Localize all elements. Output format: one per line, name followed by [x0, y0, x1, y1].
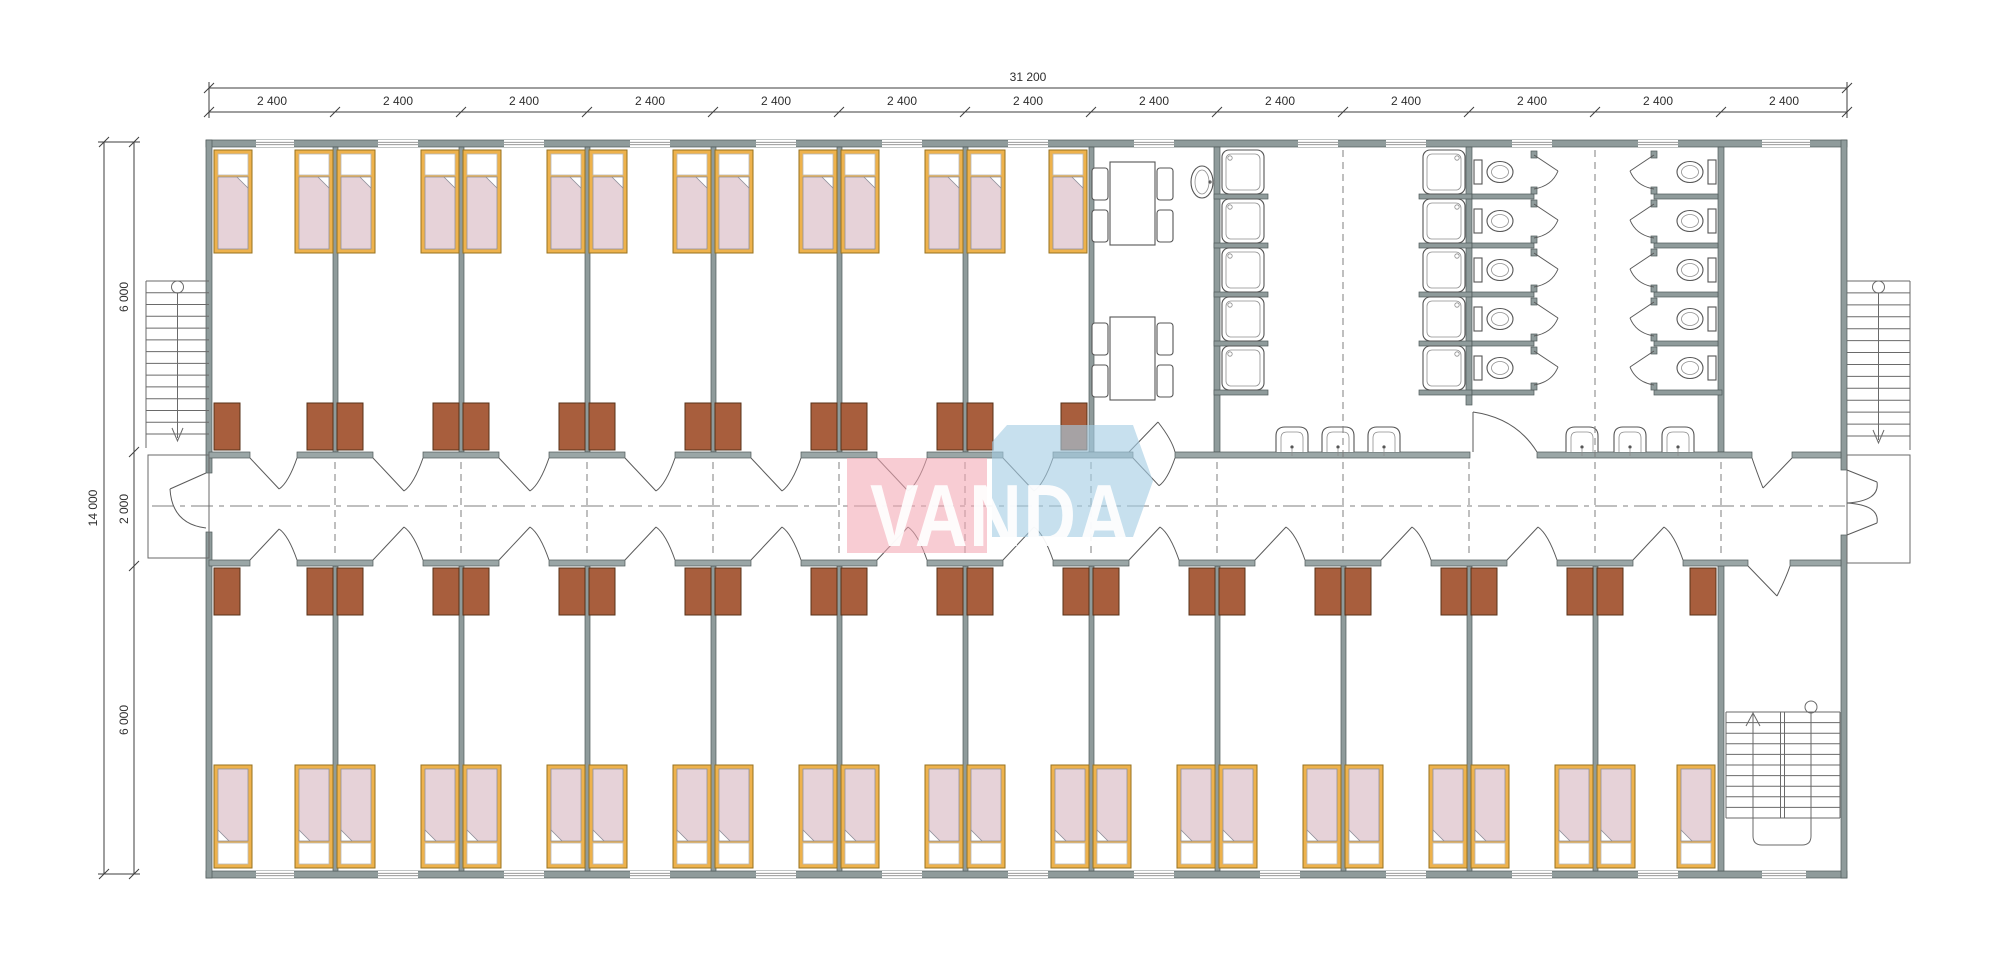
door-arc-icon: [1664, 527, 1683, 560]
door-leaf-icon: [1633, 527, 1664, 560]
door-stub: [1531, 187, 1537, 194]
corridor-wall-segment: [209, 560, 250, 566]
bed-icon: [463, 150, 501, 253]
partition-wall: [1466, 147, 1472, 405]
door-leaf-icon: [1255, 527, 1286, 560]
left-exterior-stair-icon: [146, 281, 209, 558]
bed-icon: [421, 150, 459, 253]
wardrobe-icon: [1567, 568, 1593, 615]
door-leaf-icon: [373, 527, 404, 560]
stall-door-arc-icon: [1630, 367, 1654, 385]
logo-text: VANDA: [870, 466, 1132, 565]
door-leaf-icon: [373, 458, 404, 491]
bed-icon: [715, 150, 753, 253]
corridor-wall-segment: [209, 452, 250, 458]
wardrobe-icon: [1441, 568, 1467, 615]
wardrobe-icon: [337, 403, 363, 450]
wardrobe-icon: [214, 403, 240, 450]
stall-door-leaf-icon: [1534, 302, 1558, 318]
corridor-wall-segment: [297, 452, 373, 458]
window-icon: [1298, 140, 1338, 147]
corridor-wall-segment: [675, 560, 751, 566]
wardrobe-icon: [1063, 568, 1089, 615]
top-right-room-door-swing-icon: [1752, 458, 1792, 488]
toilet-icon: [1677, 258, 1716, 282]
door-arc-icon: [530, 527, 549, 560]
door-leaf-icon: [499, 458, 530, 491]
bed-icon: [1677, 765, 1715, 868]
corridor-wall-segment: [1557, 560, 1633, 566]
corridor-wall-segment: [927, 452, 1003, 458]
window-icon: [1260, 871, 1300, 878]
window-icon: [882, 140, 922, 147]
corridor-wall-segment: [801, 560, 877, 566]
toilet-icon: [1474, 307, 1513, 331]
door-leaf-icon: [625, 458, 656, 491]
window-icon: [630, 871, 670, 878]
bed-icon: [589, 765, 627, 868]
corridor-wall-segment: [675, 452, 751, 458]
window-icon: [1638, 140, 1678, 147]
dining-table-icon: [1110, 317, 1155, 400]
window-icon: [504, 140, 544, 147]
sanitary-and-dining-fixtures: [1092, 150, 1716, 456]
wardrobe-icon: [433, 403, 459, 450]
wardrobe-icon: [337, 568, 363, 615]
module-dim-label: 2 400: [761, 94, 791, 108]
shower-tray-icon: [1423, 248, 1465, 292]
stall-door-leaf-icon: [1534, 204, 1558, 220]
chair-icon: [1157, 365, 1173, 397]
stall-wall: [1472, 341, 1534, 346]
stall-door-leaf-icon: [1630, 351, 1654, 367]
wardrobe-icon: [307, 403, 333, 450]
bed-icon: [967, 765, 1005, 868]
door-leaf-icon: [751, 458, 782, 491]
module-dim-label: 2 400: [1013, 94, 1043, 108]
corridor-wall-segment: [1175, 452, 1470, 458]
shower-tray-icon: [1423, 150, 1465, 194]
corridor-wall-segment: [1537, 452, 1752, 458]
stall-door-leaf-icon: [1534, 253, 1558, 269]
bed-icon: [1429, 765, 1467, 868]
bed-icon: [925, 150, 963, 253]
toilet-icon: [1474, 258, 1513, 282]
window-icon: [882, 871, 922, 878]
partition-wall: [1718, 566, 1724, 871]
corridor-wall-segment: [1790, 560, 1841, 566]
door-arc-icon: [279, 529, 297, 560]
wardrobe-icon: [937, 403, 963, 450]
bed-icon: [337, 150, 375, 253]
height-segment-label: 2 000: [117, 494, 131, 524]
stall-wall: [1419, 292, 1472, 297]
stall-door-leaf-icon: [1534, 155, 1558, 171]
wardrobe-icon: [685, 568, 711, 615]
stall-wall: [1654, 341, 1718, 346]
door-arc-icon: [656, 458, 675, 491]
door-stub: [1651, 187, 1657, 194]
bed-icon: [1471, 765, 1509, 868]
window-icon: [1512, 871, 1552, 878]
corridor-wall-segment: [1431, 560, 1507, 566]
floor-plan-page: VANDA 31 200 2 400 2 400 2 400 2 400 2 4…: [0, 0, 2000, 977]
window-icon: [378, 140, 418, 147]
door-arc-icon: [1538, 527, 1557, 560]
stall-wall: [1419, 341, 1472, 346]
bed-icon: [1049, 150, 1087, 253]
door-stub: [1651, 236, 1657, 243]
wardrobe-icon: [967, 568, 993, 615]
module-dim-label: 2 400: [257, 94, 287, 108]
stall-wall: [1472, 243, 1534, 248]
bed-icon: [1597, 765, 1635, 868]
wardrobe-icon: [1189, 568, 1215, 615]
sink-icon: [1614, 427, 1646, 456]
bed-icon: [214, 150, 252, 253]
bed-icon: [799, 150, 837, 253]
door-arc-icon: [1286, 527, 1305, 560]
chair-icon: [1157, 210, 1173, 242]
window-icon: [1512, 140, 1552, 147]
chair-icon: [1157, 323, 1173, 355]
shower-tray-icon: [1423, 199, 1465, 243]
toilet-icon: [1474, 160, 1513, 184]
door-arc-icon: [656, 527, 675, 560]
stall-wall: [1214, 341, 1268, 346]
window-icon: [1386, 871, 1426, 878]
chair-icon: [1157, 168, 1173, 200]
stall-door-arc-icon: [1630, 318, 1654, 336]
stall-wall: [1419, 194, 1472, 199]
bed-icon: [1555, 765, 1593, 868]
bed-icon: [841, 150, 879, 253]
stall-wall: [1214, 390, 1268, 395]
stall-wall: [1214, 194, 1268, 199]
module-dim-label: 2 400: [1643, 94, 1673, 108]
window-icon: [756, 140, 796, 147]
sink-icon: [1276, 427, 1308, 456]
module-dim-label: 2 400: [383, 94, 413, 108]
wardrobe-icon: [463, 403, 489, 450]
bed-icon: [1219, 765, 1257, 868]
bed-icon: [1093, 765, 1131, 868]
bed-icon: [589, 150, 627, 253]
wardrobe-icon: [1093, 568, 1119, 615]
window-icon: [256, 140, 294, 147]
toilet-icon: [1677, 307, 1716, 331]
stair-room-door-swing-icon: [1748, 566, 1790, 596]
door-arc-icon: [404, 458, 423, 491]
wardrobe-icon: [685, 403, 711, 450]
window-icon: [378, 871, 418, 878]
window-icon: [756, 871, 796, 878]
chair-icon: [1092, 210, 1108, 242]
stall-wall: [1419, 390, 1472, 395]
window-icon: [256, 871, 294, 878]
module-dim-label: 2 400: [887, 94, 917, 108]
wardrobe-icon: [937, 568, 963, 615]
overall-width-label: 31 200: [1010, 70, 1047, 84]
wardrobe-icon: [1597, 568, 1623, 615]
bed-icon: [1177, 765, 1215, 868]
shower-tray-icon: [1222, 346, 1264, 390]
overall-height-label: 14 000: [86, 489, 100, 526]
wardrobe-icon: [559, 568, 585, 615]
wardrobe-icon: [811, 403, 837, 450]
stall-door-arc-icon: [1630, 171, 1654, 189]
stall-wall: [1654, 390, 1722, 395]
stall-wall: [1654, 194, 1718, 199]
bed-icon: [715, 765, 753, 868]
chair-icon: [1092, 365, 1108, 397]
door-stub: [1531, 285, 1537, 292]
bed-icon: [967, 150, 1005, 253]
wardrobe-icon: [715, 568, 741, 615]
wardrobe-icon: [1345, 568, 1371, 615]
module-dim-label: 2 400: [1265, 94, 1295, 108]
stall-door-leaf-icon: [1630, 204, 1654, 220]
shower-tray-icon: [1222, 199, 1264, 243]
corridor-wall-segment: [423, 452, 499, 458]
stall-wall: [1472, 292, 1534, 297]
stall-door-leaf-icon: [1534, 351, 1558, 367]
sink-icon: [1322, 427, 1354, 456]
wardrobe-icon: [841, 403, 867, 450]
sink-icon: [1566, 427, 1598, 456]
door-stub: [1531, 383, 1537, 390]
door-arc-icon: [782, 527, 801, 560]
corridor-wall-segment: [549, 560, 625, 566]
toilet-icon: [1474, 356, 1513, 380]
door-stub: [1651, 383, 1657, 390]
door-arc-icon: [279, 458, 297, 489]
partition-wall: [1718, 147, 1724, 452]
wardrobe-icon: [1690, 568, 1716, 615]
toilet-icon: [1677, 160, 1716, 184]
stall-wall: [1214, 243, 1268, 248]
module-dim-label: 2 400: [1517, 94, 1547, 108]
bed-icon: [925, 765, 963, 868]
bed-icon: [295, 150, 333, 253]
toilet-icon: [1677, 209, 1716, 233]
window-icon: [630, 140, 670, 147]
door-stub: [1651, 334, 1657, 341]
shower-tray-icon: [1423, 297, 1465, 341]
corridor-wall-segment: [549, 452, 625, 458]
bed-icon: [673, 150, 711, 253]
bed-icon: [295, 765, 333, 868]
stall-wall: [1472, 194, 1534, 199]
bed-icon: [1345, 765, 1383, 868]
door-leaf-icon: [1381, 527, 1412, 560]
stall-door-arc-icon: [1534, 269, 1558, 287]
stall-door-arc-icon: [1534, 318, 1558, 336]
corridor-wall-segment: [297, 560, 373, 566]
height-segment-label: 6 000: [117, 705, 131, 735]
wardrobe-icon: [967, 403, 993, 450]
bed-icon: [673, 765, 711, 868]
stall-door-leaf-icon: [1630, 155, 1654, 171]
bed-icon: [799, 765, 837, 868]
door-stub: [1651, 285, 1657, 292]
corridor-wall-segment: [1683, 560, 1748, 566]
exterior-wall: [206, 140, 212, 473]
door-leaf-icon: [625, 527, 656, 560]
height-segment-label: 6 000: [117, 282, 131, 312]
stall-wall: [1214, 292, 1268, 297]
stall-wall: [1654, 292, 1718, 297]
bed-icon: [214, 765, 252, 868]
bed-icon: [421, 765, 459, 868]
module-dim-label: 2 400: [1139, 94, 1169, 108]
wardrobe-icon: [811, 568, 837, 615]
door-leaf-icon: [1507, 527, 1538, 560]
module-dim-label: 2 400: [509, 94, 539, 108]
bed-icon: [463, 765, 501, 868]
bed-icon: [1303, 765, 1341, 868]
door-arc-icon: [1412, 527, 1431, 560]
door-arc-icon: [1160, 527, 1179, 560]
exterior-wall: [1841, 140, 1847, 470]
shower-tray-icon: [1222, 297, 1264, 341]
window-icon: [1762, 140, 1810, 147]
wardrobe-icon: [307, 568, 333, 615]
shower-tray-icon: [1222, 150, 1264, 194]
corridor-wall-segment: [1792, 452, 1841, 458]
stall-door-leaf-icon: [1630, 302, 1654, 318]
door-leaf-icon: [250, 529, 279, 560]
door-leaf-icon: [751, 527, 782, 560]
window-icon: [1386, 140, 1426, 147]
window-icon: [1008, 140, 1048, 147]
window-icon: [504, 871, 544, 878]
door-arc-icon: [782, 458, 801, 491]
chair-icon: [1092, 323, 1108, 355]
wardrobe-icon: [463, 568, 489, 615]
door-stub: [1531, 236, 1537, 243]
stall-door-arc-icon: [1534, 367, 1558, 385]
chair-icon: [1092, 168, 1108, 200]
wardrobe-icon: [559, 403, 585, 450]
corridor-wall-segment: [801, 452, 877, 458]
door-arc-icon: [1159, 458, 1175, 486]
wardrobe-icon: [589, 568, 615, 615]
sink-icon: [1368, 427, 1400, 456]
bed-icon: [1051, 765, 1089, 868]
wardrobe-icon: [433, 568, 459, 615]
corridor-wall-segment: [423, 560, 499, 566]
wardrobe-icon: [1219, 568, 1245, 615]
oval-basin-icon: [1191, 166, 1216, 198]
stall-door-arc-icon: [1534, 220, 1558, 238]
bed-icon: [841, 765, 879, 868]
bed-icon: [547, 150, 585, 253]
toilet-icon: [1474, 209, 1513, 233]
wardrobe-icon: [214, 568, 240, 615]
stall-wall: [1654, 243, 1718, 248]
sink-icon: [1662, 427, 1694, 456]
partition-wall: [1214, 147, 1220, 452]
window-icon: [1638, 871, 1678, 878]
corridor-wall-segment: [1305, 560, 1381, 566]
corridor-wall-segment: [1179, 560, 1255, 566]
bed-icon: [547, 765, 585, 868]
dining-table-icon: [1110, 162, 1155, 245]
washroom-door-swing-icon: [1473, 412, 1537, 452]
door-leaf-icon: [250, 458, 279, 489]
window-icon: [1134, 140, 1174, 147]
shower-tray-icon: [1423, 346, 1465, 390]
module-dim-label: 2 400: [1391, 94, 1421, 108]
door-arc-icon: [404, 527, 423, 560]
exterior-wall: [1841, 535, 1847, 878]
stall-door-arc-icon: [1534, 171, 1558, 189]
vanda-logo: VANDA: [847, 425, 1153, 565]
door-arc-icon: [530, 458, 549, 491]
window-icon: [1134, 871, 1174, 878]
shower-tray-icon: [1222, 248, 1264, 292]
stall-door-arc-icon: [1630, 220, 1654, 238]
module-dim-label: 2 400: [1769, 94, 1799, 108]
floor-plan-drawing: VANDA 31 200 2 400 2 400 2 400 2 400 2 4…: [0, 0, 2000, 977]
exterior-wall: [206, 532, 212, 878]
bed-icon: [337, 765, 375, 868]
right-exterior-stair-icon: [1847, 281, 1910, 563]
wardrobe-icon: [841, 568, 867, 615]
window-icon: [1008, 871, 1048, 878]
window-icon: [1762, 871, 1806, 878]
door-stub: [1531, 334, 1537, 341]
door-leaf-icon: [499, 527, 530, 560]
stall-wall: [1419, 243, 1472, 248]
wardrobe-icon: [589, 403, 615, 450]
stall-wall: [1472, 390, 1534, 395]
wardrobe-icon: [1315, 568, 1341, 615]
module-dim-label: 2 400: [635, 94, 665, 108]
stall-door-leaf-icon: [1630, 253, 1654, 269]
wardrobe-icon: [1471, 568, 1497, 615]
stall-door-arc-icon: [1630, 269, 1654, 287]
wardrobe-icon: [715, 403, 741, 450]
toilet-icon: [1677, 356, 1716, 380]
